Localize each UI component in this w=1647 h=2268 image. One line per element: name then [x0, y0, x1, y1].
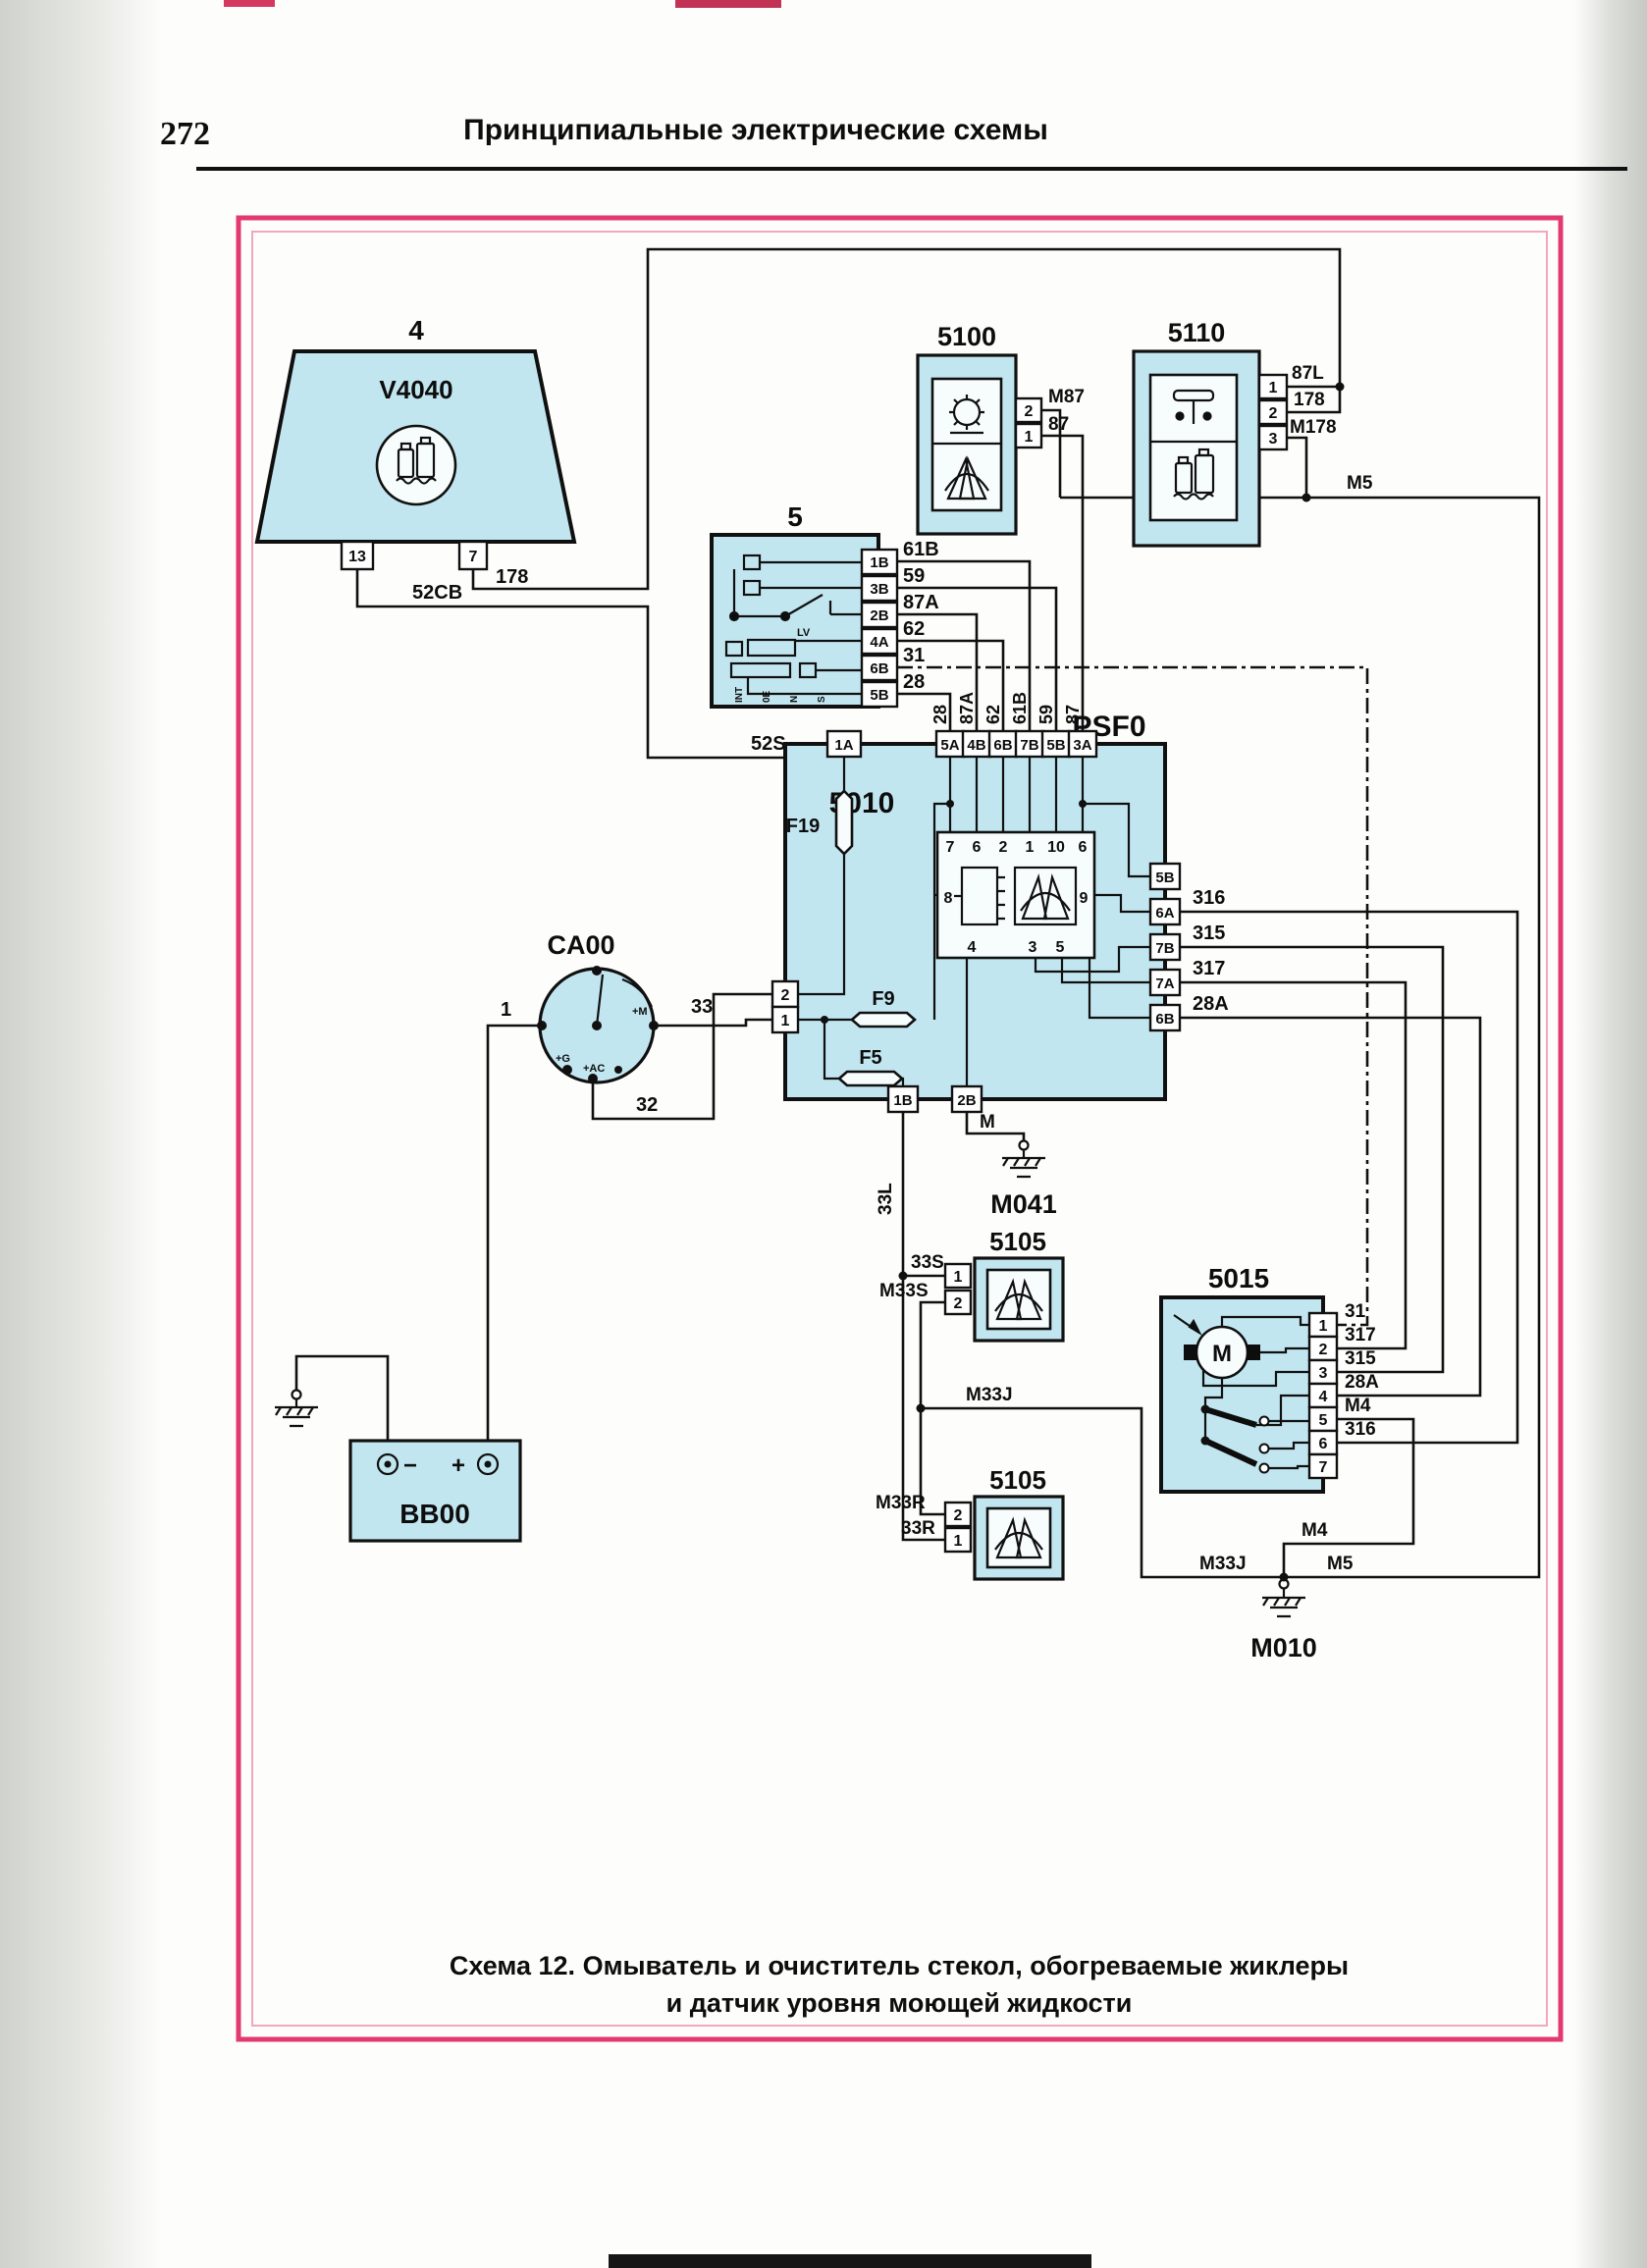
5105-top-pin2: 2: [954, 1295, 963, 1312]
label-87l: 87L: [1292, 363, 1324, 384]
caption: Схема 12. Омыватель и очиститель стекол,…: [450, 1951, 1349, 2018]
switch5-pos-int: INT: [734, 687, 745, 703]
ca00-contact-plus-ac: [588, 1074, 598, 1083]
relay-pin-9: 9: [1080, 890, 1089, 907]
caption-line-1: Схема 12. Омыватель и очиститель стекол,…: [450, 1951, 1349, 1980]
psf0-top-wire-61b: 61B: [1010, 692, 1030, 724]
ca00-contact-top: [592, 966, 602, 976]
switch5-pin4a: 4A: [870, 634, 888, 651]
label-28a: 28A: [1193, 993, 1229, 1015]
v4040-code: V4040: [379, 375, 452, 404]
label-87: 87: [1048, 414, 1069, 435]
label-61b: 61B: [903, 539, 939, 560]
label-5015-31: 31: [1345, 1301, 1366, 1322]
switch5-pos-s: S: [817, 696, 827, 703]
5110-pin3: 3: [1269, 431, 1278, 448]
ground-m041-label: M041: [990, 1189, 1057, 1219]
switch5-pin3b: 3B: [870, 581, 888, 598]
psf0-right-5b: 5B: [1155, 870, 1174, 886]
label-32: 32: [636, 1094, 658, 1116]
scan-mark-top-left: [224, 0, 275, 7]
5105-top-code: 5105: [989, 1227, 1046, 1256]
label-33r: 33R: [901, 1518, 935, 1539]
wire-m178: [1287, 438, 1306, 498]
wire-317: [1180, 982, 1406, 1348]
relay-pin-6: 6: [973, 839, 982, 856]
component-ca00: CA00 +M +G +AC: [537, 930, 659, 1083]
5100-pin1: 1: [1025, 429, 1034, 446]
fuse-f9: [852, 1013, 915, 1027]
5015-pin2: 2: [1319, 1342, 1328, 1358]
label-m178: M178: [1290, 417, 1337, 438]
5110-pin1: 1: [1269, 380, 1278, 396]
5105-bottom-pin2: 2: [954, 1507, 963, 1524]
v4040-ref: 4: [408, 315, 424, 345]
5105-bottom-code: 5105: [989, 1465, 1046, 1495]
component-5015: 5015 M 1 2 3 4: [1161, 1263, 1337, 1492]
5015-code: 5015: [1208, 1263, 1269, 1293]
label-33: 33: [691, 996, 713, 1018]
relay-pin-8: 8: [944, 890, 953, 907]
wire-33l: [903, 1112, 945, 1540]
v4040-pin7: 7: [469, 549, 478, 565]
label-52cb: 52CB: [412, 582, 462, 604]
label-178: 178: [496, 566, 528, 588]
label-m33j-mid: M33J: [966, 1385, 1013, 1405]
wire-87: [1041, 436, 1083, 732]
5015-pin4: 4: [1319, 1389, 1328, 1405]
label-m4-bot: M4: [1302, 1520, 1328, 1541]
scan-mark-bottom: [609, 2254, 1091, 2268]
ground-m041: M041: [990, 1141, 1057, 1220]
label-52s: 52S: [751, 733, 786, 755]
psf0-top-wire-87: 87: [1063, 705, 1083, 724]
ca00-center: [592, 1021, 602, 1030]
label-178b: 178: [1294, 390, 1325, 410]
fuse-f19-label: F19: [786, 816, 820, 837]
label-m33r: M33R: [876, 1493, 926, 1513]
psf0-1a: 1A: [834, 737, 853, 754]
relay-pin-3: 3: [1029, 939, 1037, 956]
bb00-minus-pin: [385, 1461, 392, 1468]
ca00-label-plus-g: +G: [556, 1053, 570, 1065]
5015-pin6: 6: [1319, 1436, 1328, 1452]
label-5015-316: 316: [1345, 1419, 1376, 1440]
psf0-right-6b: 6B: [1155, 1011, 1174, 1028]
label-5015-m4: M4: [1345, 1396, 1371, 1416]
relay-pin-2: 2: [999, 839, 1008, 856]
junction-33s: [899, 1272, 908, 1281]
psf0-top-wire-62: 62: [983, 705, 1003, 724]
manual-page: 272 Принципиальные электрические схемы: [0, 0, 1647, 2268]
5110-pin2: 2: [1269, 405, 1278, 422]
psf0-top-wire-87a: 87A: [957, 692, 977, 724]
psf0-left-pin1: 1: [781, 1013, 790, 1029]
motor-brush-right: [1247, 1345, 1260, 1360]
label-5015-315: 315: [1345, 1348, 1376, 1369]
5015-pin3: 3: [1319, 1365, 1328, 1382]
label-33l: 33L: [876, 1183, 896, 1215]
scan-mark-top-center: [675, 0, 781, 8]
bb00-code: BB00: [399, 1499, 470, 1529]
label-5015-28a: 28A: [1345, 1372, 1379, 1393]
page-right-edge-shadow: [1574, 0, 1647, 2268]
psf0-conn-7b: 7B: [1020, 737, 1038, 754]
switch5-pos-0e: 0E: [762, 690, 772, 703]
switch5-lv: LV: [797, 627, 811, 639]
psf0-1b: 1B: [893, 1092, 912, 1109]
psf0-conn-5a: 5A: [940, 737, 959, 754]
5105-bottom-pin1: 1: [954, 1533, 963, 1550]
page-header: 272 Принципиальные электрические схемы: [160, 114, 1627, 169]
motor-m: M: [1212, 1341, 1232, 1367]
5015-pin7: 7: [1319, 1459, 1328, 1476]
ground-battery-icon: [275, 1391, 318, 1427]
ca00-label-plus-m: +M: [632, 1006, 648, 1018]
component-5105-top: 5105 1 2: [945, 1227, 1063, 1341]
wire-1: [488, 1026, 542, 1454]
switch5-pos-n: N: [789, 696, 800, 703]
label-28: 28: [903, 671, 925, 693]
component-bb00: BB00 − +: [350, 1441, 520, 1541]
psf0-conn-6b: 6B: [993, 737, 1012, 754]
ca00-contact-plus-m: [649, 1021, 659, 1030]
relay-pin-5: 5: [1056, 939, 1065, 956]
psf0-top-wire-59: 59: [1036, 705, 1056, 724]
5015-pin1: 1: [1319, 1318, 1328, 1335]
psf0-right-7a: 7A: [1155, 976, 1174, 992]
page-left-edge-shadow: [0, 0, 162, 2268]
label-m5-top: M5: [1347, 473, 1373, 494]
junction-m33j: [917, 1404, 926, 1413]
psf0-left-pin2: 2: [781, 987, 790, 1004]
label-316: 316: [1193, 887, 1225, 909]
wire-m: [967, 1112, 1024, 1140]
label-87a: 87A: [903, 592, 939, 613]
psf0-conn-4b: 4B: [967, 737, 985, 754]
switch5-pin2b: 2B: [870, 607, 888, 624]
label-m: M: [980, 1112, 995, 1133]
5015-pin5: 5: [1319, 1412, 1328, 1429]
component-5105-bottom: 5105 2 1: [945, 1465, 1063, 1579]
label-m5-bot: M5: [1327, 1554, 1354, 1574]
label-5015-317: 317: [1345, 1325, 1376, 1345]
relay-pin-10: 10: [1047, 839, 1065, 856]
switch5-pin6b: 6B: [870, 660, 888, 677]
relay-pin-1: 1: [1026, 839, 1035, 856]
label-31: 31: [903, 645, 925, 666]
psf0-right-7b: 7B: [1155, 940, 1174, 957]
psf0-2b: 2B: [957, 1092, 976, 1109]
5100-pin2: 2: [1025, 403, 1034, 420]
relay-pin-7: 7: [946, 839, 955, 856]
junction-87l: [1336, 383, 1345, 392]
label-m87: M87: [1048, 387, 1085, 407]
label-317: 317: [1193, 958, 1225, 979]
ground-m010-label: M010: [1250, 1633, 1317, 1662]
bb00-minus: −: [403, 1452, 417, 1479]
wiring-diagram-canvas: 272 Принципиальные электрические схемы: [0, 0, 1647, 2268]
component-5100: 5100 2 1: [918, 322, 1041, 534]
label-33s: 33S: [911, 1252, 944, 1273]
psf0-conn-3a: 3A: [1073, 737, 1091, 754]
5110-code: 5110: [1168, 318, 1226, 347]
bb00-plus-pin: [485, 1461, 492, 1468]
component-psf0: PSF0 5010 28 87A 62 61B 59 87 1A 5A 4B 6…: [772, 692, 1180, 1112]
relay-pin-4: 4: [968, 939, 977, 956]
ground-m041-icon: [1002, 1141, 1045, 1178]
motor-brush-left: [1184, 1345, 1197, 1360]
label-315: 315: [1193, 923, 1225, 944]
component-5110: 5110 1 2 3: [1134, 318, 1287, 546]
psf0-top-wire-28: 28: [930, 705, 950, 724]
ca00-code: CA00: [547, 930, 614, 960]
fuse-f9-label: F9: [872, 988, 894, 1010]
fuse-f19: [836, 791, 852, 854]
label-m33j-bot: M33J: [1199, 1554, 1247, 1574]
v4040-pin13: 13: [348, 549, 366, 565]
5105-top-pin1: 1: [954, 1269, 963, 1286]
component-v4040: 4 V4040 13 7: [257, 315, 574, 569]
5100-code: 5100: [937, 322, 996, 351]
component-switch5: 5 LV INT 0E N S 1B 3B 2B 4A 6B: [712, 501, 897, 707]
page-title: Принципиальные электрические схемы: [463, 114, 1048, 146]
label-m33s: M33S: [879, 1281, 929, 1301]
psf0-conn-5b: 5B: [1046, 737, 1065, 754]
page-number: 272: [160, 116, 210, 152]
ca00-contact-aux: [614, 1066, 622, 1074]
ca00-label-plus-ac: +AC: [583, 1063, 605, 1075]
switch5-body: [712, 535, 878, 707]
ca00-contact-left: [537, 1021, 547, 1030]
fuse-f5: [839, 1072, 902, 1085]
label-59: 59: [903, 565, 925, 587]
switch5-pin5b: 5B: [870, 687, 888, 704]
ca00-contact-plus-g: [562, 1065, 572, 1075]
ground-m010: M010: [1250, 1580, 1317, 1663]
5110-icon-panel: [1150, 375, 1237, 520]
label-1: 1: [501, 999, 511, 1021]
psf0-right-6a: 6A: [1155, 905, 1174, 922]
relay-pin-6b: 6: [1079, 839, 1088, 856]
junction-m178-m5: [1302, 494, 1311, 502]
switch5-pin1b: 1B: [870, 554, 888, 571]
switch5-ref: 5: [787, 501, 803, 532]
ground-m010-icon: [1262, 1580, 1305, 1617]
bb00-plus: +: [452, 1452, 465, 1479]
fuse-f5-label: F5: [859, 1047, 881, 1069]
caption-line-2: и датчик уровня моющей жидкости: [666, 1988, 1133, 2018]
label-62: 62: [903, 618, 925, 640]
